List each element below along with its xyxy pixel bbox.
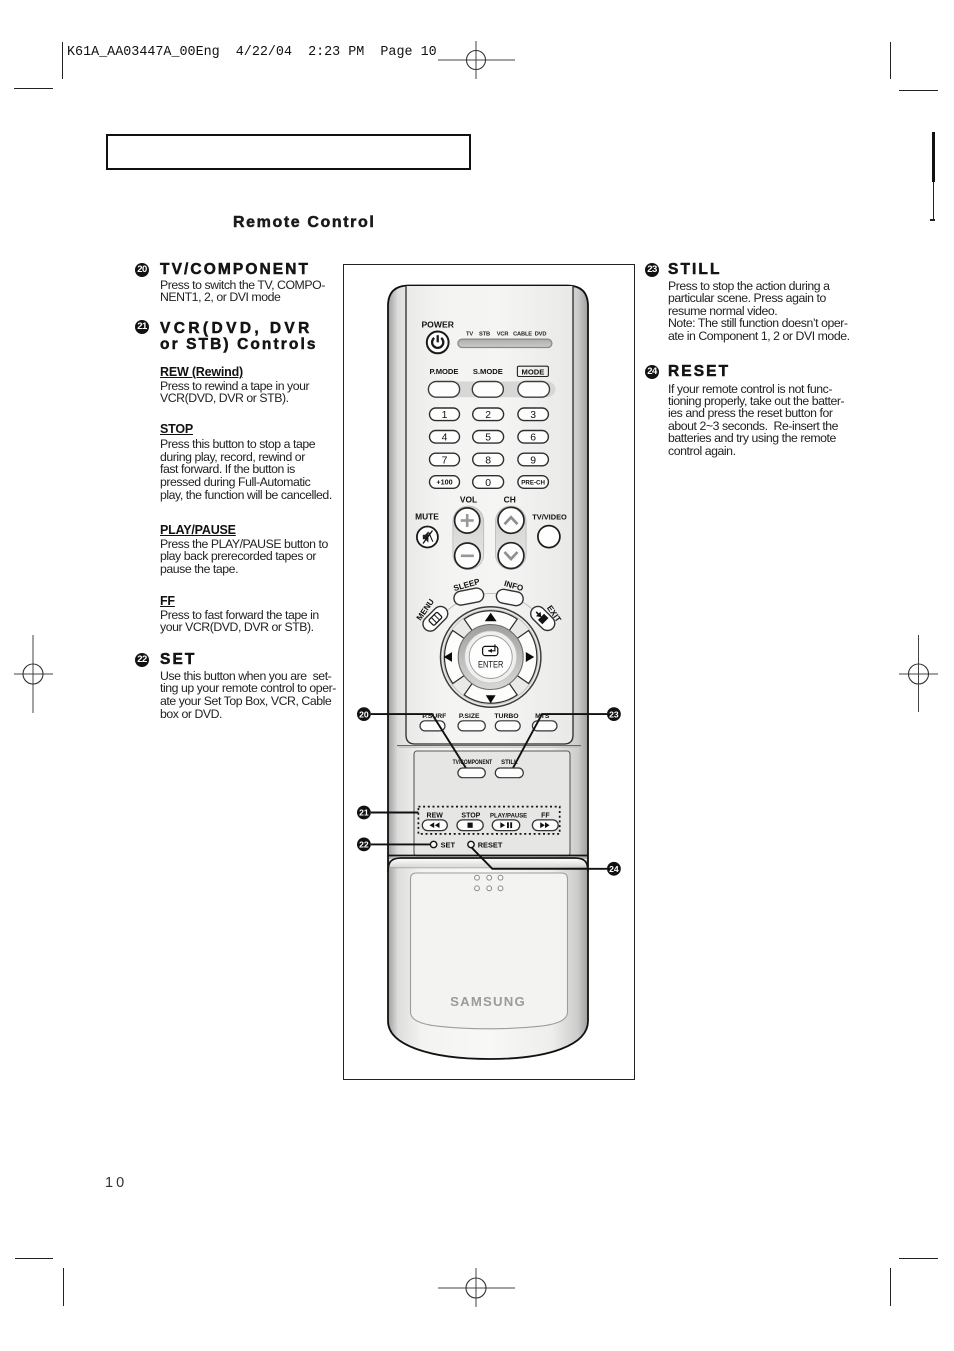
svg-text:TV/VIDEO: TV/VIDEO	[532, 513, 567, 522]
svg-text:PLAY/PAUSE: PLAY/PAUSE	[490, 812, 528, 819]
svg-text:VOL: VOL	[460, 494, 477, 504]
svg-text:TV: TV	[466, 331, 473, 337]
svg-text:MUTE: MUTE	[415, 511, 439, 521]
svg-text:24: 24	[609, 864, 619, 874]
svg-text:20: 20	[359, 709, 369, 719]
svg-text:2: 2	[485, 410, 491, 421]
svg-text:PRE-CH: PRE-CH	[521, 480, 545, 487]
svg-text:SAMSUNG: SAMSUNG	[450, 994, 526, 1009]
svg-text:S.MODE: S.MODE	[473, 367, 503, 376]
svg-text:STB: STB	[479, 331, 490, 337]
svg-text:STOP: STOP	[461, 812, 480, 819]
svg-text:21: 21	[359, 808, 369, 818]
svg-text:23: 23	[609, 709, 619, 719]
svg-text:SET: SET	[441, 840, 456, 849]
svg-text:7: 7	[442, 455, 448, 466]
svg-text:8: 8	[485, 455, 491, 466]
svg-text:0: 0	[485, 478, 491, 489]
svg-text:TURBO: TURBO	[494, 713, 518, 720]
svg-text:4: 4	[442, 433, 448, 444]
svg-text:DVD: DVD	[535, 331, 547, 337]
svg-text:6: 6	[530, 433, 536, 444]
svg-text:TV/COMPONENT: TV/COMPONENT	[453, 760, 493, 767]
svg-text:CABLE: CABLE	[513, 331, 532, 337]
svg-text:POWER: POWER	[421, 320, 454, 330]
svg-text:CH: CH	[504, 494, 516, 504]
svg-text:MODE: MODE	[522, 367, 545, 376]
svg-text:P.SIZE: P.SIZE	[459, 713, 480, 720]
svg-text:5: 5	[485, 433, 491, 444]
svg-text:RESET: RESET	[478, 840, 503, 849]
svg-text:+100: +100	[436, 478, 452, 487]
svg-text:ENTER: ENTER	[478, 660, 503, 670]
svg-text:22: 22	[359, 840, 369, 850]
svg-text:1: 1	[442, 410, 448, 421]
svg-text:P.MODE: P.MODE	[430, 367, 459, 376]
svg-text:REW: REW	[427, 812, 444, 819]
svg-text:FF: FF	[541, 812, 550, 819]
svg-text:VCR: VCR	[497, 331, 509, 337]
svg-text:9: 9	[530, 455, 536, 466]
svg-text:3: 3	[530, 410, 536, 421]
